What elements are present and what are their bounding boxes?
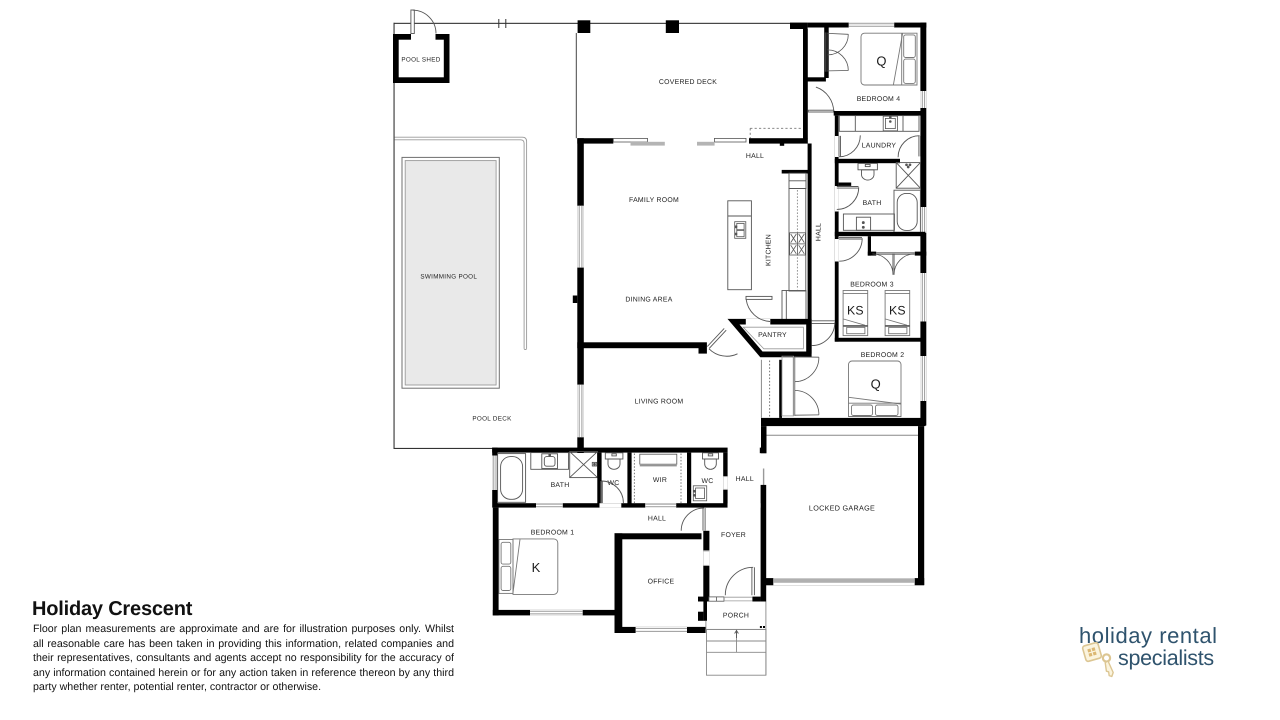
svg-text:HALL: HALL <box>736 476 754 483</box>
svg-text:LAUNDRY: LAUNDRY <box>862 142 897 149</box>
svg-text:HALL: HALL <box>746 153 764 160</box>
svg-text:PORCH: PORCH <box>723 613 749 620</box>
svg-text:KS: KS <box>847 304 864 318</box>
svg-text:BEDROOM 2: BEDROOM 2 <box>861 352 905 359</box>
svg-text:KS: KS <box>889 304 906 318</box>
svg-text:FOYER: FOYER <box>721 532 746 539</box>
svg-text:LIVING ROOM: LIVING ROOM <box>635 398 684 405</box>
svg-text:BEDROOM 3: BEDROOM 3 <box>850 282 894 289</box>
svg-text:COVERED DECK: COVERED DECK <box>659 79 717 86</box>
svg-text:PANTRY: PANTRY <box>758 332 787 339</box>
svg-text:DINING AREA: DINING AREA <box>625 296 672 303</box>
svg-text:OFFICE: OFFICE <box>648 578 675 585</box>
svg-text:WIR: WIR <box>653 477 667 484</box>
svg-text:KITCHEN: KITCHEN <box>766 234 773 266</box>
svg-text:SWIMMING POOL: SWIMMING POOL <box>420 273 477 280</box>
svg-text:POOL DECK: POOL DECK <box>472 416 512 423</box>
svg-text:BATH: BATH <box>551 482 570 489</box>
svg-text:HALL: HALL <box>816 223 823 241</box>
svg-text:K: K <box>532 560 541 575</box>
svg-text:BATH: BATH <box>863 200 882 207</box>
svg-text:Q: Q <box>876 54 886 69</box>
svg-text:HALL: HALL <box>648 516 666 523</box>
svg-text:Q: Q <box>871 377 881 392</box>
svg-text:WC: WC <box>702 478 714 485</box>
svg-text:LOCKED GARAGE: LOCKED GARAGE <box>809 504 875 513</box>
svg-text:BEDROOM 4: BEDROOM 4 <box>857 96 901 103</box>
svg-text:WC: WC <box>608 480 620 487</box>
svg-text:BEDROOM 1: BEDROOM 1 <box>531 529 575 536</box>
svg-text:FAMILY ROOM: FAMILY ROOM <box>629 197 679 204</box>
svg-text:POOL SHED: POOL SHED <box>401 57 440 64</box>
